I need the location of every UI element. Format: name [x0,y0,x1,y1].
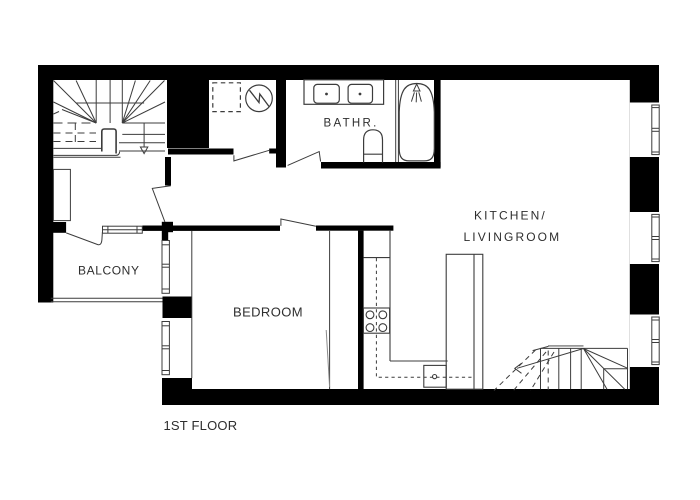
svg-text:BEDROOM: BEDROOM [233,305,303,320]
svg-text:1ST FLOOR: 1ST FLOOR [164,418,238,433]
svg-text:KITCHEN/: KITCHEN/ [474,209,547,223]
svg-text:BATHR.: BATHR. [324,117,379,129]
svg-text:BALCONY: BALCONY [78,264,140,278]
svg-text:LIVINGROOM: LIVINGROOM [464,230,562,244]
